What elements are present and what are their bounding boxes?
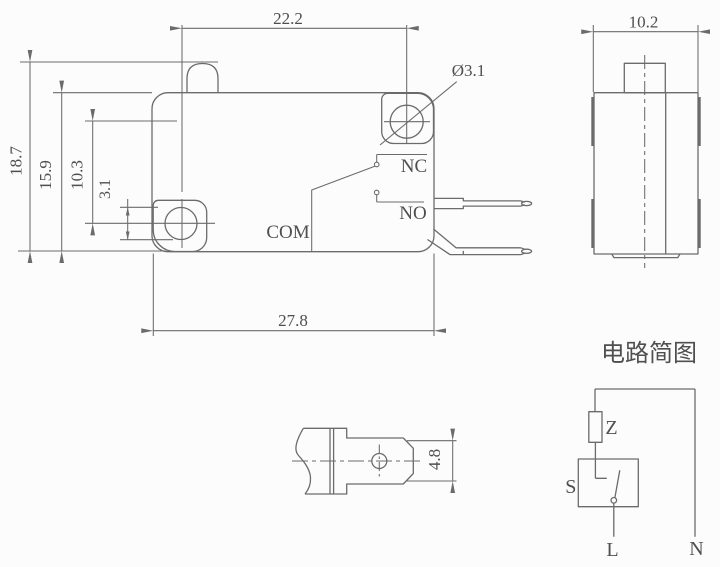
terminal-top — [434, 198, 532, 208]
plunger-button — [187, 64, 218, 93]
dim-text-15-9: 15.9 — [36, 160, 55, 190]
hole-pad-right — [382, 93, 434, 143]
label-switch-s: S — [565, 476, 576, 498]
dim-3-1-arrow-up — [126, 207, 130, 215]
label-neutral-n: N — [689, 538, 703, 560]
terminal-bottom-blade — [428, 229, 525, 255]
dim-3-1-arrow-down — [126, 232, 130, 240]
switch-box — [578, 459, 638, 507]
terminal-detail-view: 4.8 — [292, 428, 457, 494]
label-impedance-z: Z — [605, 417, 617, 439]
label-no: NO — [399, 203, 426, 224]
dim-text-10-3: 10.3 — [68, 160, 87, 190]
dim-text-10-2: 10.2 — [629, 13, 659, 32]
com-blade-line — [312, 166, 375, 251]
circuit-wires — [595, 389, 695, 537]
dim-text-hole-diameter: Ø3.1 — [452, 61, 486, 80]
front-view: 22.2 Ø3.1 27.8 18.7 15.9 10.3 3.1 NC NO … — [7, 9, 532, 336]
terminal-bottom — [428, 229, 532, 255]
terminal-top-tip — [522, 201, 532, 205]
mounting-hole-right — [380, 82, 457, 145]
front-view-dimensions: 22.2 Ø3.1 27.8 18.7 15.9 10.3 3.1 NC NO … — [7, 9, 486, 336]
switch-pivot-point — [611, 498, 617, 504]
dim-text-27-8: 27.8 — [278, 311, 308, 330]
label-live-l: L — [606, 539, 618, 561]
impedance-symbol — [589, 412, 602, 443]
dim-text-3-1: 3.1 — [97, 179, 114, 199]
side-view-dimensions: 10.2 — [593, 13, 698, 93]
switch-blade — [615, 470, 620, 497]
side-body-outline — [594, 93, 698, 254]
dim-text-22-2: 22.2 — [273, 9, 303, 28]
label-com: COM — [266, 222, 309, 243]
microswitch-technical-drawing: 22.2 Ø3.1 27.8 18.7 15.9 10.3 3.1 NC NO … — [0, 0, 720, 567]
hole-left-crosshair — [85, 199, 215, 248]
side-view: 10.2 — [592, 13, 699, 269]
no-contact-line — [377, 195, 424, 202]
terminal-top-blade — [434, 198, 525, 208]
circuit-title: 电路简图 — [601, 340, 697, 367]
no-contact-point — [374, 190, 379, 195]
dim-text-18-7: 18.7 — [7, 146, 26, 176]
circuit-diagram: 电路简图 Z S L N — [565, 340, 703, 561]
dim-text-4-8: 4.8 — [425, 449, 444, 470]
label-nc: NC — [401, 156, 427, 177]
nc-contact-point — [374, 162, 379, 167]
terminal-bottom-tip — [522, 249, 532, 253]
side-extension-lines — [593, 25, 698, 92]
side-edge-ribs — [592, 97, 699, 248]
drawing-canvas: 22.2 Ø3.1 27.8 18.7 15.9 10.3 3.1 NC NO … — [0, 0, 720, 567]
diameter-leader-line — [380, 82, 457, 145]
